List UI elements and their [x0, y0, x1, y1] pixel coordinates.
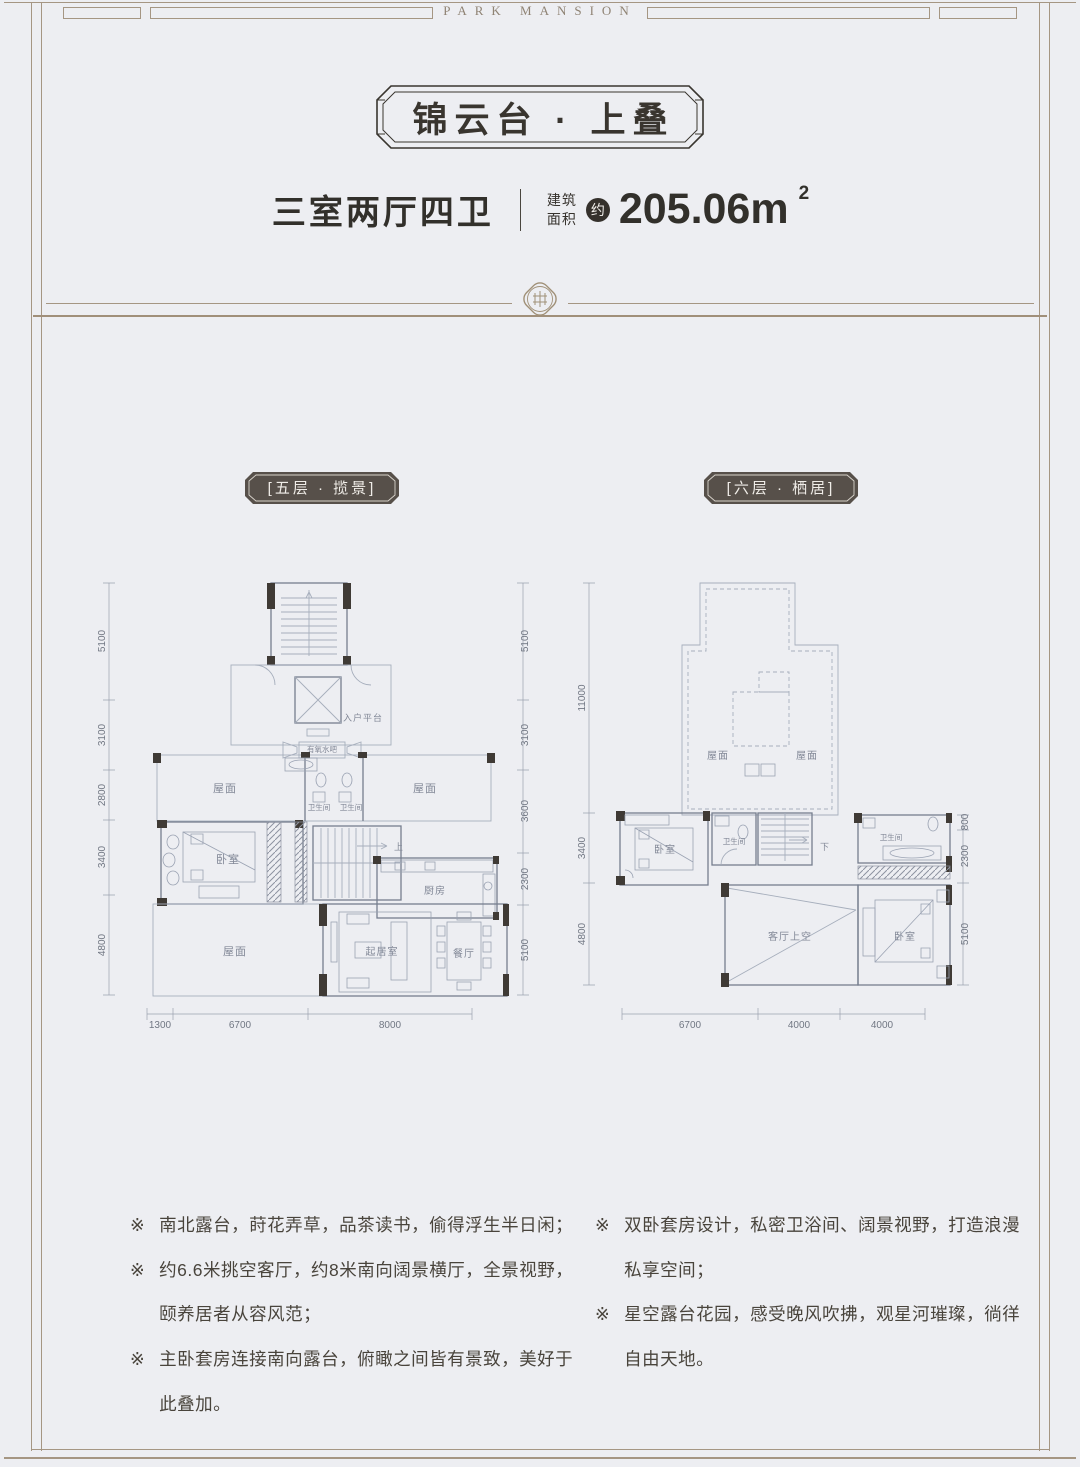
bath-right-6f: 卫生间: [854, 813, 952, 879]
dim-label: 2300: [960, 844, 971, 867]
frame-bottom-line-inner: [31, 1449, 1049, 1450]
room-label-roof-left: 屋面: [213, 782, 237, 795]
subtitle-row: 三室两厅四卫 建筑 面积 约 205.06m 2: [0, 185, 1080, 234]
bedroom-right-6f: 卧室: [858, 885, 952, 985]
feature-text: 星空露台花园，感受晚风吹拂，观星河璀璨，徜徉自由天地。: [624, 1292, 1027, 1381]
feature-text: 双卧套房设计，私密卫浴间、阔景视野，打造浪漫私享空间；: [624, 1203, 1027, 1292]
dims-bottom-5f: 1300 6700 8000: [147, 1008, 472, 1030]
dim-label: 3400: [97, 845, 108, 868]
floorplan-sixth-floor: 11000 3400 4800 800 2300 5100 6700 4000 …: [575, 570, 995, 1030]
approx-badge: 约: [586, 198, 610, 222]
bullet-marker: ※: [130, 1203, 145, 1248]
dims-left-6f: 11000 3400 4800: [577, 583, 595, 985]
room-label-waterbar: 有氧水吧: [307, 744, 337, 754]
seal-medallion-icon: [518, 275, 562, 328]
dim-label: 800: [960, 813, 971, 830]
header-divider-right: [568, 303, 1034, 304]
terrace-5f: 屋面: [153, 904, 323, 996]
dims-left-5f: 5100 3100 2800 3400 4800: [97, 583, 115, 995]
room-label-roof-left: 屋面: [707, 750, 729, 762]
dims-bottom-6f: 6700 4000 4000: [622, 1008, 925, 1030]
area-label-line1: 建筑: [547, 192, 577, 208]
dim-label: 4800: [577, 922, 588, 945]
floor5-badge: [五层 · 揽景]: [243, 470, 401, 506]
area-label: 建筑 面积: [547, 191, 577, 229]
dim-label: 3400: [577, 836, 588, 859]
dim-label: 5100: [97, 629, 108, 652]
room-label-roof-right: 屋面: [413, 782, 437, 795]
frame-bottom-line-outer: [4, 1457, 1076, 1459]
page-title: 锦云台 · 上叠: [375, 84, 705, 150]
stairs-5f: 上: [267, 822, 404, 902]
area-label-line2: 面积: [547, 211, 577, 227]
feature-item: ※ 约6.6米挑空客厅，约8米南向阔景横厅，全景视野，颐养居者从容风范；: [130, 1248, 585, 1337]
upper-band-5f: 屋面 卫生间 卫生间 屋面: [153, 752, 495, 821]
dim-label: 5100: [520, 938, 531, 961]
dim-label: 4000: [788, 1020, 811, 1030]
room-label-bath-right: 卫生间: [880, 832, 903, 842]
bullet-marker: ※: [595, 1292, 610, 1381]
feature-text: 主卧套房连接南向露台，俯瞰之间皆有景致，美好于此叠加。: [159, 1337, 585, 1426]
floor6-badge: [六层 · 栖居]: [702, 470, 860, 506]
room-label-bedroom-left: 卧室: [654, 843, 676, 856]
room-label-void: 客厅上空: [768, 930, 812, 943]
subtitle-divider: [520, 189, 521, 231]
room-label-bedroom: 卧室: [216, 852, 240, 866]
dim-label: 2800: [97, 783, 108, 806]
bullet-marker: ※: [130, 1337, 145, 1426]
room-label-bath-mid: 卫生间: [723, 836, 746, 846]
feature-item: ※ 主卧套房连接南向露台，俯瞰之间皆有景致，美好于此叠加。: [130, 1337, 585, 1426]
floorplan-fifth-floor: 5100 3100 2800 3400 4800 5100 3100 3600 …: [95, 570, 535, 1030]
layout-spec: 三室两厅四卫: [272, 185, 494, 234]
area-group: 建筑 面积 约 205.06m 2: [547, 185, 808, 234]
feature-item: ※ 南北露台，莳花弄草，品茶读书，偷得浮生半日闲；: [130, 1203, 585, 1248]
feature-text: 南北露台，莳花弄草，品茶读书，偷得浮生半日闲；: [159, 1203, 585, 1248]
room-label-dining: 餐厅: [453, 947, 475, 960]
feature-item: ※ 双卧套房设计，私密卫浴间、阔景视野，打造浪漫私享空间；: [595, 1203, 1027, 1292]
area-superscript: 2: [799, 183, 810, 205]
dim-label: 2300: [520, 867, 531, 890]
feature-item: ※ 星空露台花园，感受晚风吹拂，观星河璀璨，徜徉自由天地。: [595, 1292, 1027, 1381]
room-label-entry: 入户平台: [343, 712, 383, 723]
dim-label: 6700: [679, 1020, 702, 1030]
dim-label: 8000: [379, 1020, 402, 1030]
frame-deco-box-right-small: [939, 7, 1017, 19]
header-divider-left: [46, 303, 512, 304]
brand-wordmark: PARK MANSION: [440, 3, 640, 19]
room-label-bedroom-right: 卧室: [894, 930, 916, 943]
dim-label: 4800: [97, 933, 108, 956]
dim-label: 4000: [871, 1020, 894, 1030]
stair-up-label: 上: [394, 842, 404, 852]
features-left-column: ※ 南北露台，莳花弄草，品茶读书，偷得浮生半日闲； ※ 约6.6米挑空客厅，约8…: [130, 1203, 585, 1426]
title-plaque: 锦云台 · 上叠: [375, 84, 705, 150]
frame-deco-box-left-small: [63, 7, 141, 19]
features-right-column: ※ 双卧套房设计，私密卫浴间、阔景视野，打造浪漫私享空间； ※ 星空露台花园，感…: [595, 1203, 1027, 1382]
dim-label: 5100: [960, 922, 971, 945]
bullet-marker: ※: [595, 1203, 610, 1292]
room-label-bath2: 卫生间: [340, 802, 363, 812]
living-void-6f: 客厅上空: [721, 883, 858, 987]
dim-label: 3100: [520, 723, 531, 746]
entry-hall-5f: 入户平台 有氧水吧: [231, 665, 391, 758]
room-label-kitchen: 厨房: [424, 884, 446, 897]
poster-page: PARK MANSION 锦云台 · 上叠 三室两厅四卫 建筑 面积 约 205…: [0, 0, 1080, 1467]
bedroom-left-6f: 卧室: [616, 811, 710, 885]
stair-down-label: 下: [820, 842, 830, 852]
dim-label: 3100: [97, 723, 108, 746]
frame-deco-box-left-long: [150, 7, 433, 19]
area-value: 205.06m: [619, 185, 789, 234]
bullet-marker: ※: [130, 1248, 145, 1337]
roof-terrace-6f: 屋面 屋面: [682, 583, 838, 815]
dim-label: 3600: [520, 799, 531, 822]
dims-right-6f: 800 2300 5100: [957, 813, 971, 985]
floor6-badge-label: [六层 · 栖居]: [727, 480, 836, 497]
bath-mid-6f: 卫生间: [712, 813, 756, 865]
feature-text: 约6.6米挑空客厅，约8米南向阔景横厅，全景视野，颐养居者从容风范；: [159, 1248, 585, 1337]
dims-right-5f: 5100 3100 3600 2300 5100: [517, 583, 531, 995]
dim-label: 6700: [229, 1020, 252, 1030]
room-label-roof-right: 屋面: [796, 750, 818, 762]
floor5-badge-label: [五层 · 揽景]: [268, 480, 377, 497]
dim-label: 1300: [149, 1020, 172, 1030]
room-label-terrace: 屋面: [223, 945, 247, 958]
stairs-6f: 下: [758, 813, 830, 865]
room-label-bath1: 卫生间: [308, 802, 331, 812]
frame-deco-box-right-long: [647, 7, 930, 19]
room-label-living: 起居室: [366, 945, 399, 958]
stairwell-5f: [267, 583, 351, 665]
dim-label: 5100: [520, 629, 531, 652]
kitchen-5f: 厨房: [373, 856, 499, 920]
dim-label: 11000: [577, 684, 588, 712]
